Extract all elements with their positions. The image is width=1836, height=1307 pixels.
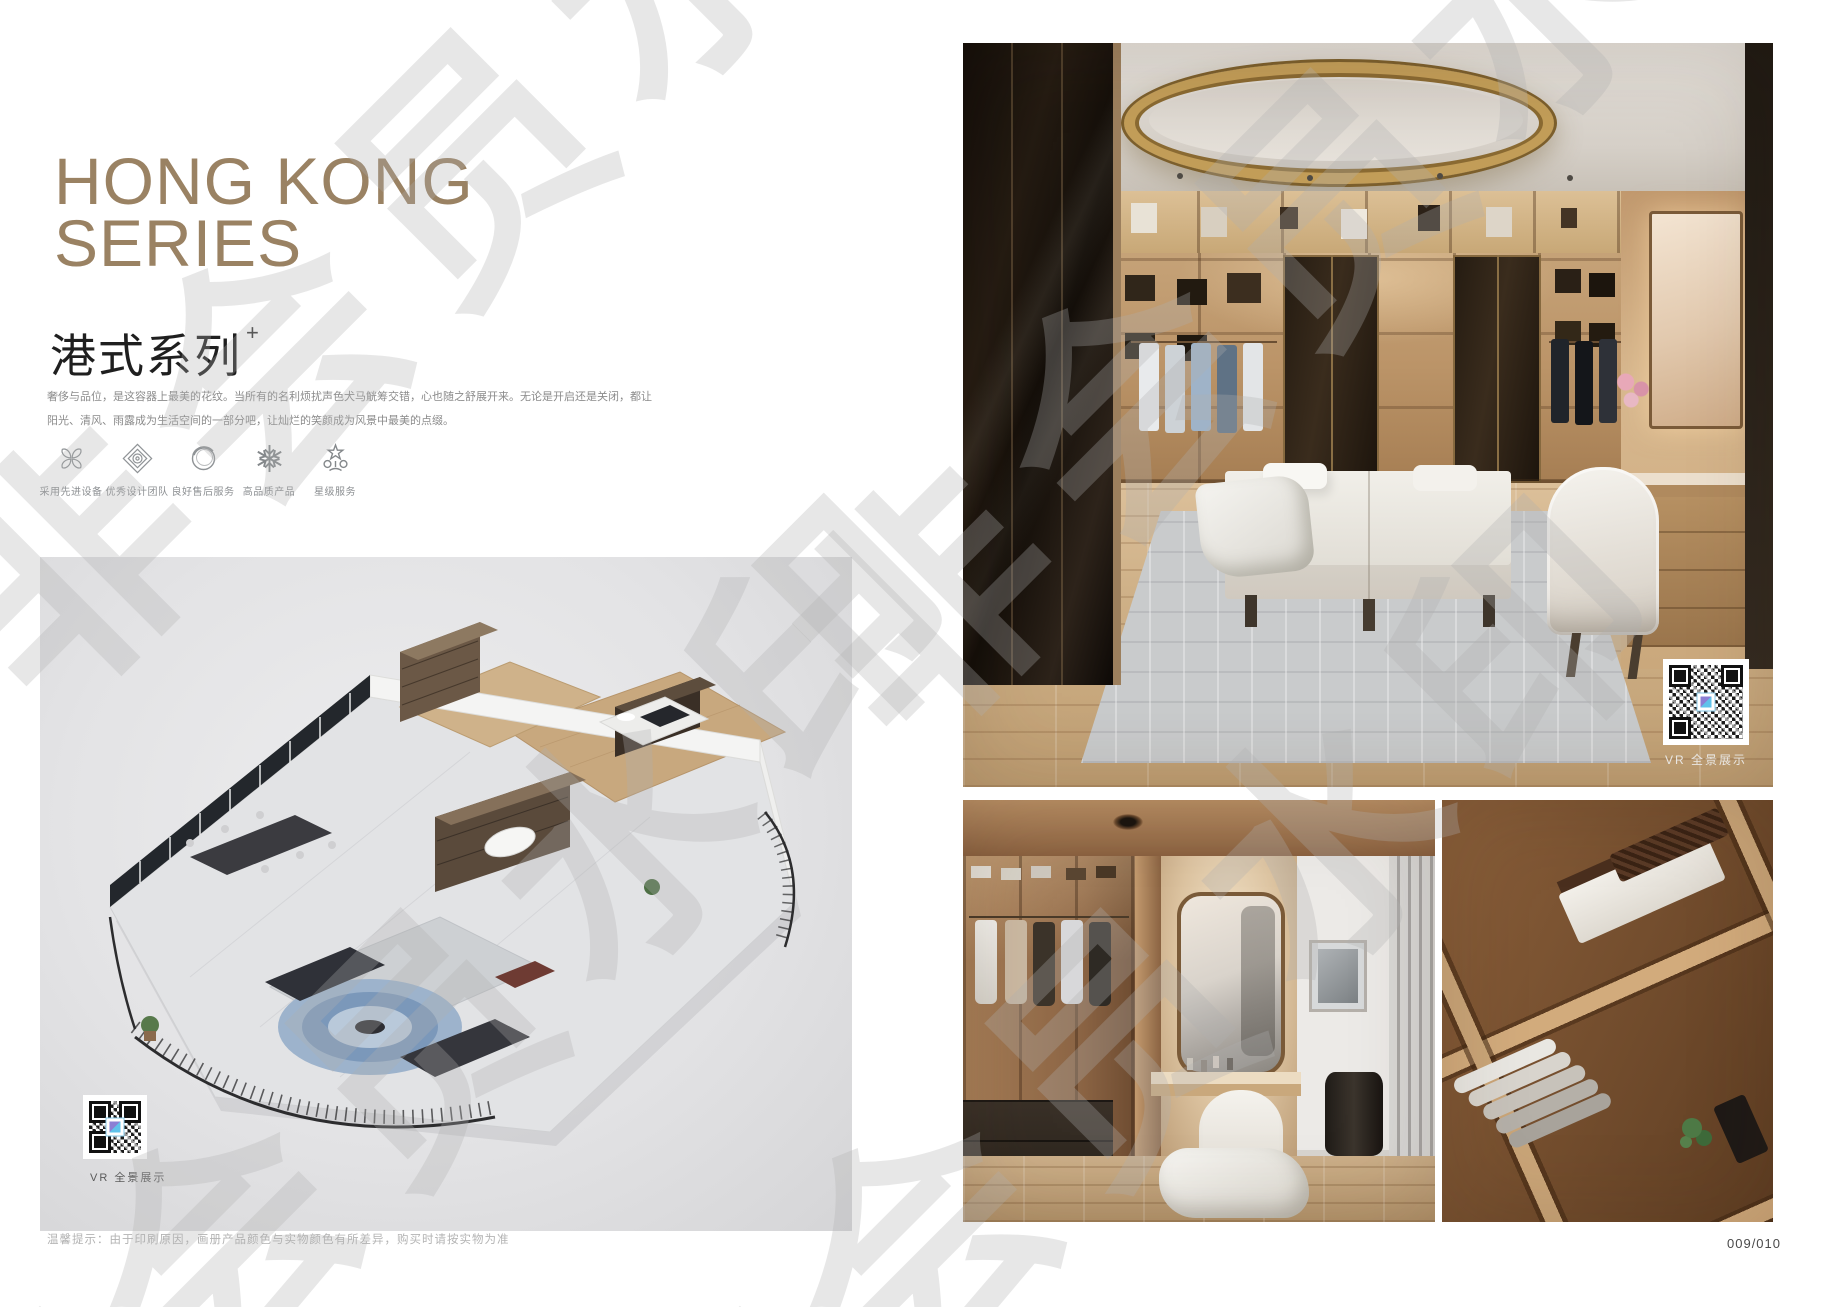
qr-finder-marker	[1721, 665, 1743, 687]
hanging-clothes-light	[1139, 343, 1159, 431]
ring-swirl-icon	[187, 442, 220, 475]
striped-panel	[1389, 856, 1435, 1156]
series-title-line1: HONG KONG	[54, 150, 474, 212]
upper-cubbies	[1113, 191, 1623, 253]
closet-rod	[969, 916, 1129, 918]
qr-code-floorplan-vr	[83, 1095, 147, 1159]
feature-star-service: 星级服务	[302, 442, 368, 498]
dark-wardrobe-right	[1453, 255, 1541, 483]
series-title-cn: 港式系列+	[50, 320, 257, 386]
vanity-mirror	[1177, 892, 1285, 1076]
desk-cosmetics	[1187, 1058, 1193, 1070]
qr-finder-marker	[1669, 717, 1691, 739]
vr-panorama-label: VR 全景展示	[90, 1169, 166, 1185]
series-title-cn-text: 港式系列	[50, 330, 242, 382]
folded-clothes-stack	[971, 866, 991, 878]
feature-advanced-equipment: 采用先进设备	[38, 442, 104, 498]
main-photo-walkin-closet: VR 全景展示	[963, 43, 1773, 787]
qr-center-logo	[106, 1118, 125, 1137]
catalog-spread: HONG KONG SERIES 港式系列+ 奢侈与品位，是这容器上最美的花纹。…	[0, 0, 1836, 1307]
shelf-items-top	[1131, 203, 1157, 233]
white-armchair	[1547, 467, 1659, 635]
shelf-frame-grid	[1442, 800, 1773, 1222]
hanging-clothes-dark	[1551, 339, 1569, 423]
series-title-en: HONG KONG SERIES	[54, 150, 474, 274]
pink-flowers	[1611, 367, 1653, 417]
shelf-bags-right	[1555, 269, 1581, 293]
series-title-line2: SERIES	[54, 212, 474, 274]
feature-label: 高品质产品	[243, 483, 296, 498]
qr-finder-marker	[1669, 665, 1691, 687]
photo-vanity-corner	[963, 800, 1435, 1222]
page-number: 009/010	[1727, 1236, 1781, 1251]
feature-label: 优秀设计团队	[106, 483, 169, 498]
shelf-bags-left	[1125, 275, 1155, 301]
feature-quality-product: 高品质产品	[236, 442, 302, 498]
snowflake-icon	[253, 442, 286, 475]
vanity-desk	[1151, 1072, 1301, 1084]
star-badge-icon	[319, 442, 352, 475]
bed-legs	[1245, 595, 1257, 627]
white-draped-cloth	[1159, 1148, 1309, 1218]
qr-center-logo	[1697, 693, 1716, 712]
feature-design-team: 优秀设计团队	[104, 442, 170, 498]
wall-art-frame	[1309, 940, 1367, 1012]
floorplan-panel: VR 全景展示	[40, 557, 852, 1231]
vanity-mirror	[1649, 211, 1743, 429]
ceiling-spotlight	[1113, 814, 1143, 830]
ceiling-downlights	[1177, 173, 1183, 179]
vr-panorama-label: VR 全景展示	[1665, 751, 1747, 768]
wood-ceiling	[963, 800, 1435, 856]
dark-wardrobe-left	[1283, 255, 1379, 483]
qr-code-main-photo-vr	[1663, 659, 1749, 745]
floorplan-illustration	[40, 557, 852, 1231]
right-edge-mirror	[1745, 43, 1773, 669]
print-disclaimer: 温馨提示：由于印刷原因，画册产品颜色与实物颜色有所差异，购买时请按实物为准	[47, 1231, 510, 1247]
hanging-garments	[975, 920, 997, 1004]
dark-barrel-cabinet	[1325, 1072, 1383, 1156]
gold-ring-inner	[1149, 79, 1523, 161]
draped-blanket	[1194, 473, 1315, 580]
pinwheel-flower-icon	[55, 442, 88, 475]
wood-pillar	[1135, 856, 1161, 1156]
feature-label: 星级服务	[314, 483, 356, 498]
series-title-plus: +	[246, 320, 261, 345]
dark-glass-wardrobe	[963, 43, 1121, 685]
feature-list: 采用先进设备 优秀设计团队 良好售后服务	[38, 442, 368, 498]
photo-shelf-closeup	[1442, 800, 1773, 1222]
diamond-rosette-icon	[121, 442, 154, 475]
feature-after-sales: 良好售后服务	[170, 442, 236, 498]
green-plant	[1682, 1118, 1702, 1138]
feature-label: 良好售后服务	[172, 483, 235, 498]
series-description: 奢侈与品位，是这容器上最美的花纹。当所有的名利烦扰声色犬马觥筹交错，心也随之舒展…	[47, 385, 652, 433]
feature-label: 采用先进设备	[40, 483, 103, 498]
